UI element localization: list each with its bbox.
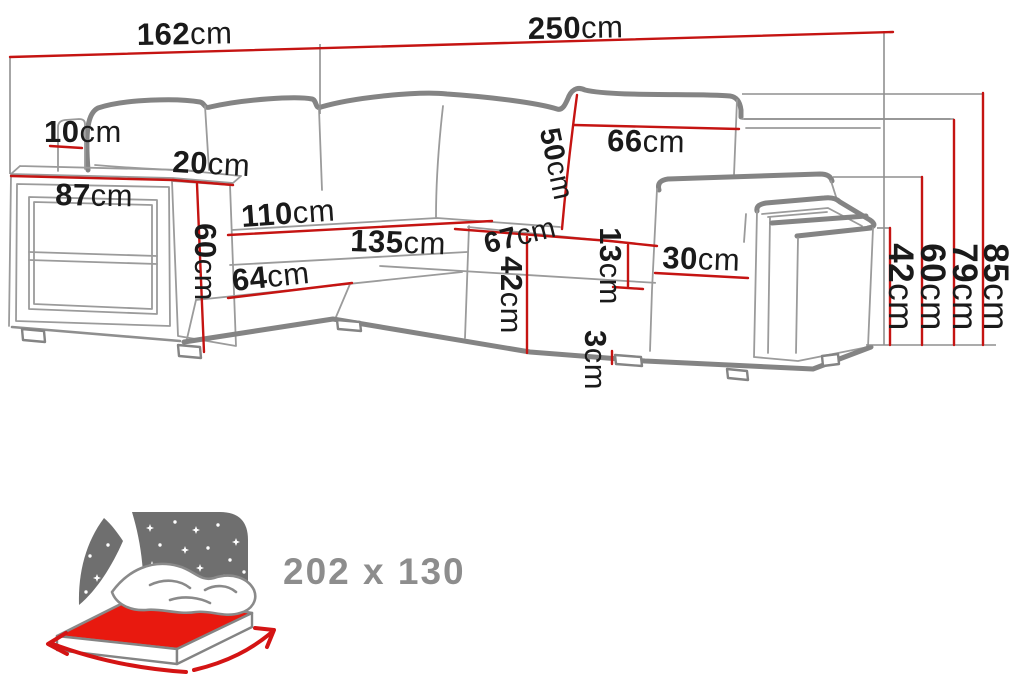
dim-unit: cm — [190, 15, 233, 51]
foot-armrest — [727, 369, 748, 380]
foot-seat — [615, 355, 642, 366]
dim-label-67cm: 67cm — [481, 212, 560, 261]
sleeping-area-size: 202 x 130 — [283, 551, 466, 592]
diagram-canvas: 162cm 250cm 10cm 20cm 87cm 110cm 60cm 64… — [0, 0, 1020, 690]
dim-value: 66 — [607, 123, 643, 159]
dim-unit: cm — [90, 178, 133, 214]
dim-label-250cm: 250cm — [528, 9, 624, 46]
corner-sofa-sketch — [9, 88, 950, 380]
dim-value: 3 — [579, 330, 614, 348]
dim-unit: cm — [291, 193, 336, 231]
dim-unit: cm — [642, 124, 685, 160]
dim-label-13cm: 13cm — [594, 227, 629, 305]
dim-value: 20 — [172, 144, 209, 181]
dim-label-110cm: 110cm — [240, 193, 336, 234]
foot-shelf-right — [178, 345, 201, 358]
dim-unit: cm — [495, 292, 530, 334]
dim-unit: cm — [189, 259, 224, 301]
dim-label-135cm: 135cm — [350, 223, 447, 261]
right-backrest-lines — [742, 119, 950, 128]
dim-unit: cm — [403, 225, 447, 261]
shelf-left-edge — [9, 175, 11, 326]
dim-value: 135 — [350, 223, 404, 260]
dim-label-20cm: 20cm — [172, 144, 252, 183]
dim-label-10cm: 10cm — [44, 114, 122, 149]
dim-value: 250 — [528, 10, 582, 46]
foot-corner — [337, 320, 361, 331]
dim-value: 87 — [55, 177, 91, 213]
dim-unit: cm — [579, 348, 614, 390]
dim-label-162cm: 162cm — [137, 15, 233, 52]
dim-label-3cm: 3cm — [579, 330, 614, 390]
dim-unit: cm — [540, 158, 580, 203]
dim-unit: cm — [697, 241, 741, 277]
furniture-dimension-diagram: 162cm 250cm 10cm 20cm 87cm 110cm 60cm 64… — [0, 0, 1020, 690]
dim-value: 60 — [189, 223, 224, 258]
dim-label-87cm: 87cm — [55, 177, 133, 213]
dim-unit: cm — [79, 114, 121, 149]
foot-ottoman — [822, 354, 839, 366]
dim-label-64cm: 64cm — [230, 255, 311, 298]
dim-unit: cm — [581, 9, 624, 45]
dim-value: 42 — [495, 256, 530, 291]
dim-value: 85 — [977, 243, 1016, 283]
dim-unit: cm — [265, 255, 311, 294]
dim-unit: cm — [513, 212, 559, 253]
dim-label-height-85cm: 85cm — [977, 243, 1016, 331]
dim-value: 64 — [230, 259, 269, 298]
dim-value: 13 — [594, 227, 629, 262]
sleep-function-icon: 202 x 130 — [48, 512, 466, 672]
dim-value: 30 — [662, 240, 699, 276]
dim-unit: cm — [977, 283, 1016, 331]
dim-label-30cm: 30cm — [662, 240, 741, 278]
dim-value: 10 — [44, 114, 79, 149]
dim-value: 162 — [137, 16, 191, 52]
dim-unit: cm — [207, 146, 251, 183]
dim-label-66cm: 66cm — [607, 123, 685, 159]
dim-label-60cm-left: 60cm — [189, 223, 224, 301]
nested-ottoman-set — [754, 198, 874, 361]
foot-shelf-left — [22, 329, 45, 342]
dim-label-42cm-mid: 42cm — [495, 256, 530, 334]
dim-value: 110 — [240, 195, 294, 234]
dim-unit: cm — [594, 263, 629, 305]
